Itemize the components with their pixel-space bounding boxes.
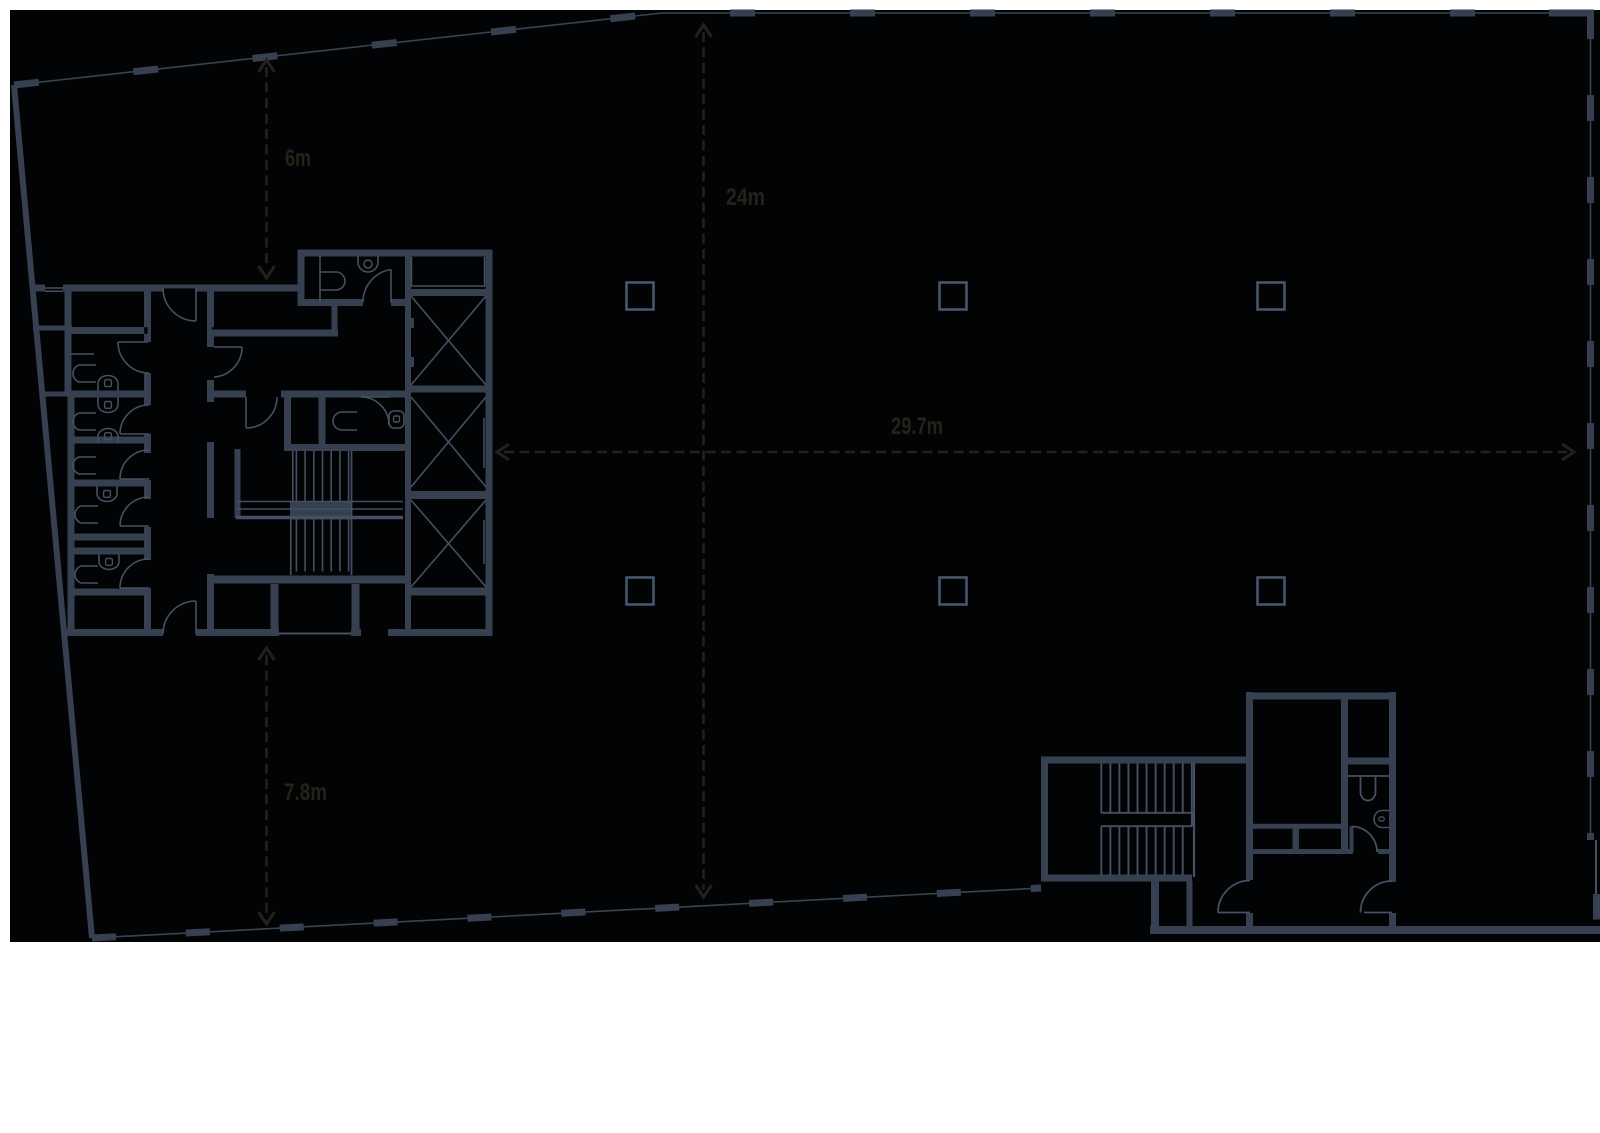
svg-text:7.8m: 7.8m (284, 779, 327, 806)
svg-text:24m: 24m (726, 184, 765, 211)
svg-text:29.7m: 29.7m (891, 413, 943, 440)
svg-text:6m: 6m (285, 145, 311, 172)
